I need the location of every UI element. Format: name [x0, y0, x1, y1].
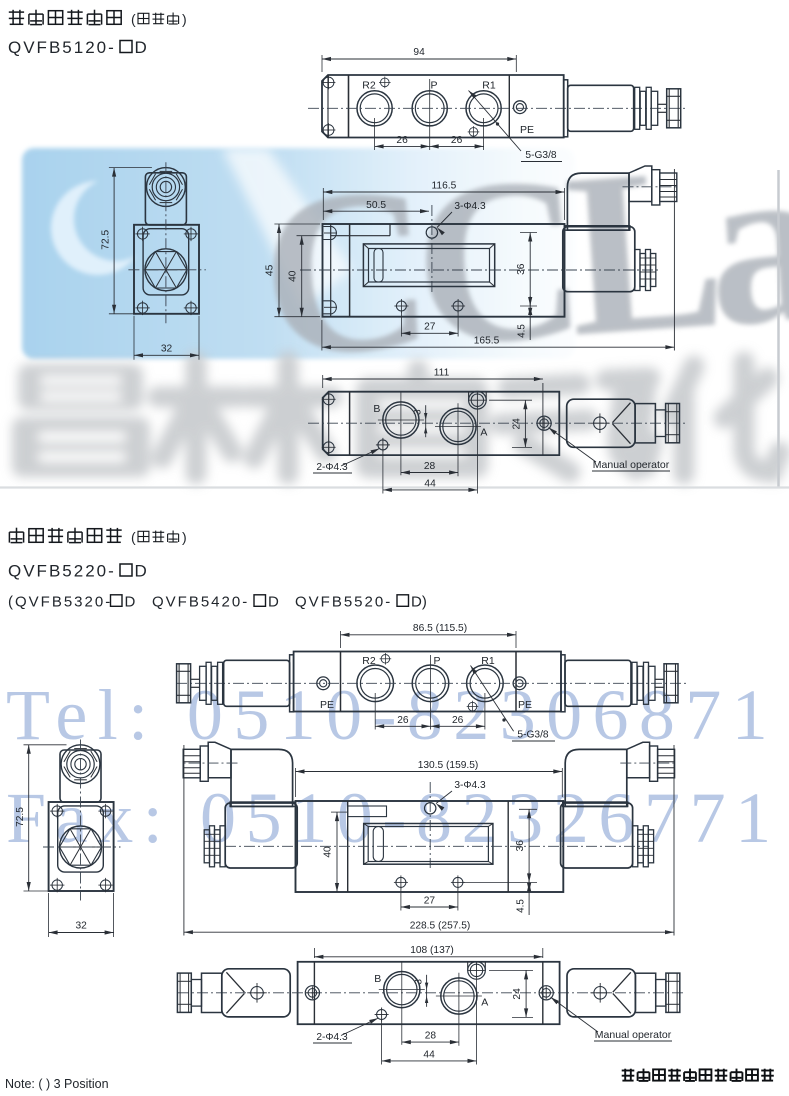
svg-text:2-Φ4.3: 2-Φ4.3 [316, 1032, 348, 1043]
svg-text:A: A [481, 996, 488, 1008]
svg-text:36: 36 [515, 840, 526, 852]
svg-text:D: D [135, 38, 147, 57]
svg-text:PE: PE [320, 699, 334, 711]
svg-text:R2: R2 [362, 80, 376, 92]
svg-text:3-Φ4.3: 3-Φ4.3 [454, 201, 486, 212]
svg-text:26: 26 [451, 135, 463, 146]
svg-text:28: 28 [425, 1031, 437, 1042]
svg-text:R2: R2 [362, 655, 376, 667]
svg-text:R1: R1 [482, 80, 496, 92]
svg-text:40: 40 [288, 270, 299, 282]
svg-text:44: 44 [423, 1049, 435, 1060]
svg-text:44: 44 [424, 478, 436, 489]
svg-text:26: 26 [452, 715, 464, 726]
svg-text:45: 45 [265, 264, 276, 276]
svg-text:26: 26 [396, 135, 408, 146]
svg-text:D: D [268, 593, 279, 610]
svg-text:(: ( [131, 11, 136, 27]
svg-text:3: 3 [413, 979, 424, 985]
svg-text:A: A [480, 427, 487, 439]
svg-text:P: P [430, 80, 437, 92]
svg-text:28: 28 [424, 461, 436, 472]
svg-text:5-G3/8: 5-G3/8 [517, 730, 548, 741]
svg-text:50.5: 50.5 [366, 200, 386, 211]
svg-text:(QVFB5320-: (QVFB5320- [8, 593, 112, 610]
svg-text:QVFB5120-: QVFB5120- [8, 38, 116, 57]
svg-text:R1: R1 [481, 655, 495, 667]
svg-text:Note: ( ) 3 Position: Note: ( ) 3 Position [5, 1077, 109, 1091]
svg-text:26: 26 [397, 715, 409, 726]
svg-text:3-Φ4.3: 3-Φ4.3 [454, 780, 486, 791]
svg-text:40: 40 [323, 846, 334, 858]
svg-text:(: ( [131, 529, 136, 545]
svg-text:165.5: 165.5 [474, 336, 500, 347]
svg-text:): ) [182, 529, 187, 545]
svg-text:32: 32 [75, 921, 87, 932]
svg-text:116.5: 116.5 [432, 181, 457, 192]
svg-text:Fax: 0510-82326771: Fax: 0510-82326771 [6, 778, 781, 858]
svg-text:PE: PE [518, 699, 532, 711]
svg-text:Manual operator: Manual operator [595, 1029, 672, 1041]
svg-text:36: 36 [516, 263, 527, 275]
svg-text:72.5: 72.5 [100, 230, 111, 250]
svg-text:24: 24 [512, 988, 523, 1000]
svg-text:3: 3 [412, 409, 423, 415]
svg-text:32: 32 [161, 343, 173, 354]
svg-text:108 (137): 108 (137) [410, 945, 454, 956]
svg-text:24: 24 [511, 418, 522, 430]
svg-text:B: B [374, 973, 381, 985]
svg-text:27: 27 [424, 896, 436, 907]
svg-text:94: 94 [413, 47, 425, 58]
svg-text:5-G3/8: 5-G3/8 [525, 150, 556, 161]
svg-text:D): D) [411, 593, 427, 610]
svg-text:Manual operator: Manual operator [593, 459, 670, 471]
svg-text:86.5 (115.5): 86.5 (115.5) [413, 623, 467, 634]
svg-text:130.5 (159.5): 130.5 (159.5) [418, 760, 479, 771]
svg-text:27: 27 [424, 322, 436, 333]
svg-text:QVFB5220-: QVFB5220- [8, 562, 116, 581]
svg-text:4.5: 4.5 [517, 324, 528, 338]
svg-text:4.5: 4.5 [516, 899, 527, 913]
svg-text:B: B [373, 403, 380, 415]
svg-text:CCLair: CCLair [253, 99, 789, 407]
svg-text:QVFB5420-: QVFB5420- [152, 593, 249, 610]
svg-text:PE: PE [520, 124, 534, 136]
svg-text:QVFB5520-: QVFB5520- [295, 593, 392, 610]
svg-text:): ) [182, 11, 187, 27]
svg-text:2-Φ4.3: 2-Φ4.3 [316, 462, 348, 473]
svg-text:228.5 (257.5): 228.5 (257.5) [410, 921, 471, 932]
svg-text:D: D [135, 562, 147, 581]
svg-text:D: D [125, 593, 136, 610]
svg-text:P: P [433, 655, 440, 667]
svg-text:72.5: 72.5 [15, 807, 26, 827]
svg-text:111: 111 [434, 368, 450, 379]
